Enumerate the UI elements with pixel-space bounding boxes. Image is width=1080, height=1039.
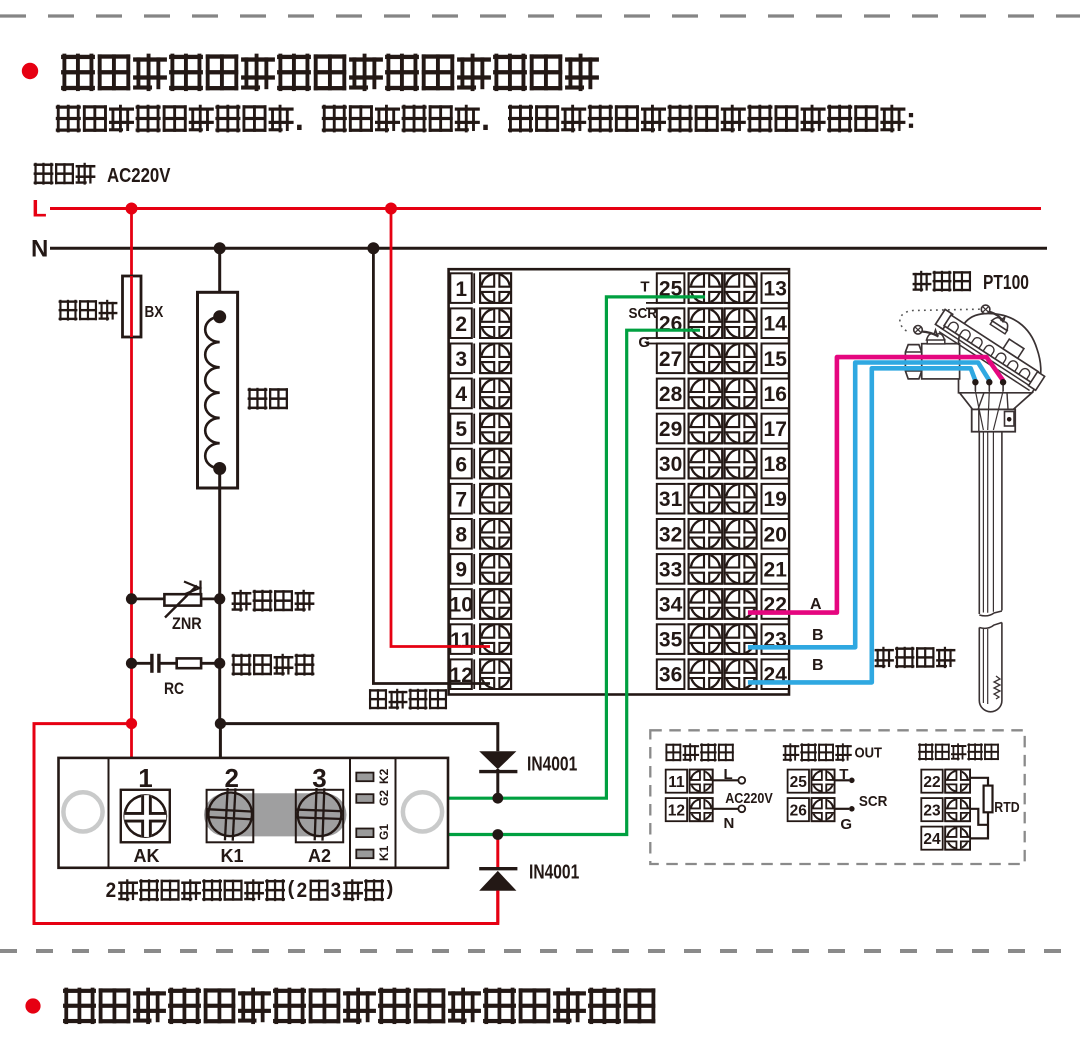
svg-text:32: 32 — [659, 523, 682, 546]
svg-text:1: 1 — [138, 763, 152, 793]
svg-text:36: 36 — [659, 664, 682, 687]
svg-text:11: 11 — [668, 774, 685, 791]
svg-text:34: 34 — [659, 594, 683, 617]
svg-text:35: 35 — [659, 629, 683, 652]
svg-text:25: 25 — [790, 774, 808, 791]
svg-text:29: 29 — [659, 418, 682, 441]
svg-text:G2: G2 — [377, 790, 391, 806]
svg-text:15: 15 — [764, 348, 788, 371]
svg-text:24: 24 — [923, 831, 941, 848]
svg-text:3: 3 — [312, 763, 326, 793]
svg-text:IN4001: IN4001 — [527, 753, 577, 775]
svg-text:AC220V: AC220V — [107, 164, 171, 187]
svg-text:T: T — [640, 279, 649, 296]
svg-text:13: 13 — [764, 278, 787, 301]
svg-text:K1: K1 — [377, 845, 391, 861]
svg-text:3: 3 — [455, 348, 467, 371]
svg-text:4: 4 — [455, 383, 467, 406]
svg-text:SCR: SCR — [859, 793, 887, 810]
svg-text:16: 16 — [764, 383, 787, 406]
svg-text:(: ( — [288, 878, 295, 900]
svg-text:17: 17 — [764, 418, 787, 441]
svg-text:10: 10 — [450, 594, 473, 617]
svg-text:L: L — [32, 196, 47, 223]
svg-text:20: 20 — [764, 523, 787, 546]
svg-text:2: 2 — [297, 879, 308, 902]
svg-text:G: G — [638, 334, 650, 351]
svg-text:OUT: OUT — [855, 744, 883, 761]
svg-text:B: B — [812, 657, 824, 674]
svg-text:6: 6 — [455, 453, 467, 476]
svg-text:30: 30 — [659, 453, 682, 476]
svg-text:2: 2 — [224, 763, 238, 793]
svg-text:K1: K1 — [220, 846, 243, 866]
svg-text:AC220V: AC220V — [725, 789, 773, 806]
svg-text:RC: RC — [164, 680, 184, 699]
svg-text:14: 14 — [764, 313, 788, 336]
svg-text:A2: A2 — [308, 846, 331, 866]
svg-text:7: 7 — [455, 488, 467, 511]
svg-text:L: L — [724, 766, 733, 783]
svg-text:11: 11 — [450, 629, 473, 652]
svg-text:31: 31 — [659, 488, 683, 511]
svg-text:23: 23 — [923, 803, 941, 820]
svg-text:2: 2 — [455, 313, 467, 336]
svg-text:33: 33 — [659, 558, 682, 581]
svg-text:26: 26 — [790, 803, 808, 820]
svg-text:AK: AK — [134, 846, 160, 866]
svg-text:A: A — [810, 596, 822, 613]
svg-text:12: 12 — [668, 803, 685, 820]
svg-text:G1: G1 — [377, 824, 391, 840]
svg-text:28: 28 — [659, 383, 683, 406]
svg-text:N: N — [724, 815, 735, 832]
svg-text:26: 26 — [659, 313, 682, 336]
svg-text:G: G — [840, 816, 852, 833]
svg-text:18: 18 — [764, 453, 788, 476]
svg-text:ZNR: ZNR — [172, 615, 202, 633]
svg-text:2: 2 — [106, 879, 117, 902]
svg-text:5: 5 — [455, 418, 467, 441]
svg-text:3: 3 — [331, 879, 342, 902]
svg-text:RTD: RTD — [994, 799, 1020, 815]
svg-text:): ) — [387, 878, 394, 900]
svg-text:BX: BX — [145, 304, 164, 321]
svg-text:19: 19 — [764, 488, 787, 511]
svg-text:B: B — [812, 627, 824, 644]
svg-text:8: 8 — [455, 524, 467, 547]
svg-text:22: 22 — [923, 774, 940, 791]
svg-text:PT100: PT100 — [983, 271, 1029, 293]
svg-text:T: T — [839, 766, 848, 783]
svg-text:IN4001: IN4001 — [529, 861, 579, 883]
svg-text:27: 27 — [659, 348, 682, 371]
svg-text:1: 1 — [455, 278, 467, 301]
svg-text:21: 21 — [764, 558, 788, 581]
svg-text:9: 9 — [455, 559, 467, 582]
svg-text:N: N — [31, 236, 48, 263]
svg-text:K2: K2 — [377, 768, 391, 784]
